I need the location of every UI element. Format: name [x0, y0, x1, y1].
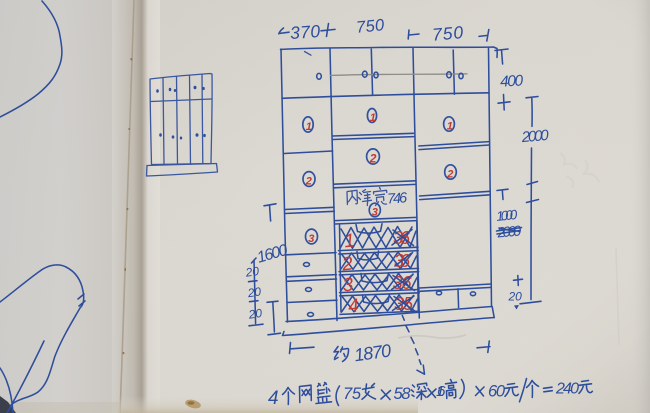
svg-text:1000: 1000 [496, 207, 519, 224]
svg-text:16: 16 [436, 383, 446, 400]
svg-text:4: 4 [347, 296, 360, 318]
svg-text:4: 4 [268, 388, 279, 409]
svg-text:58: 58 [394, 385, 412, 403]
svg-text:2000: 2000 [520, 127, 550, 146]
svg-text:2: 2 [369, 152, 377, 166]
svg-text:1: 1 [447, 121, 453, 133]
svg-text:2: 2 [305, 176, 312, 188]
svg-text:20: 20 [244, 264, 260, 280]
svg-text:3: 3 [308, 233, 314, 245]
svg-text:3: 3 [372, 207, 378, 219]
svg-text:750: 750 [431, 22, 464, 45]
svg-text:75: 75 [343, 385, 362, 403]
svg-text:1: 1 [370, 112, 376, 124]
svg-text:240: 240 [555, 381, 579, 398]
svg-text:20: 20 [247, 306, 263, 322]
svg-text:60: 60 [488, 383, 506, 401]
svg-text:746: 746 [387, 190, 409, 207]
svg-text:400: 400 [500, 72, 524, 90]
svg-text:1: 1 [306, 121, 312, 133]
svg-text:2: 2 [446, 169, 453, 181]
svg-text:1: 1 [343, 230, 356, 252]
svg-text:370: 370 [289, 21, 321, 43]
svg-text:20: 20 [246, 284, 262, 300]
svg-text:20: 20 [508, 290, 523, 304]
svg-text:750: 750 [355, 16, 386, 37]
